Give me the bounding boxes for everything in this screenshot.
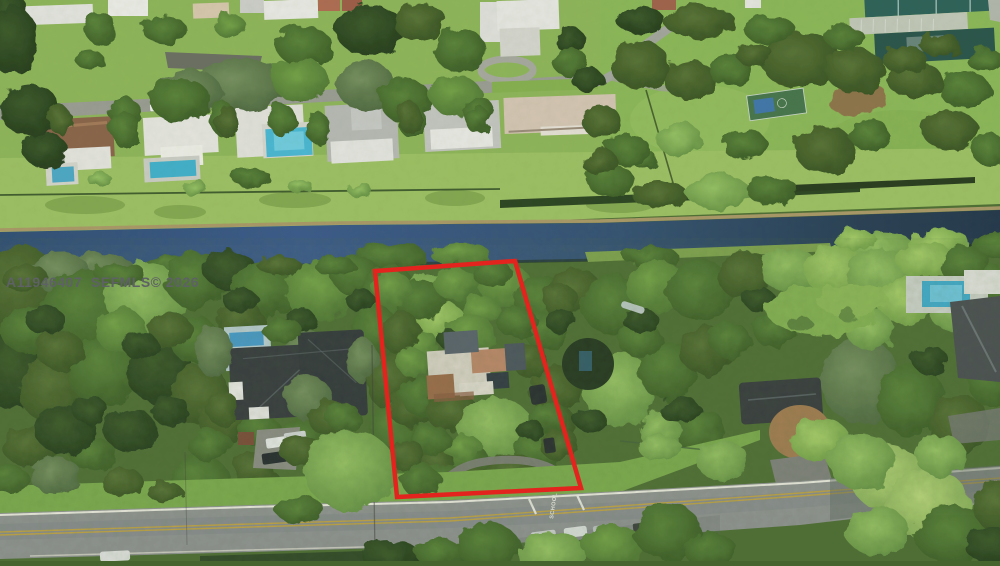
svg-text:A11946407 SEFMLS© 2026: A11946407 SEFMLS© 2026	[6, 274, 199, 290]
